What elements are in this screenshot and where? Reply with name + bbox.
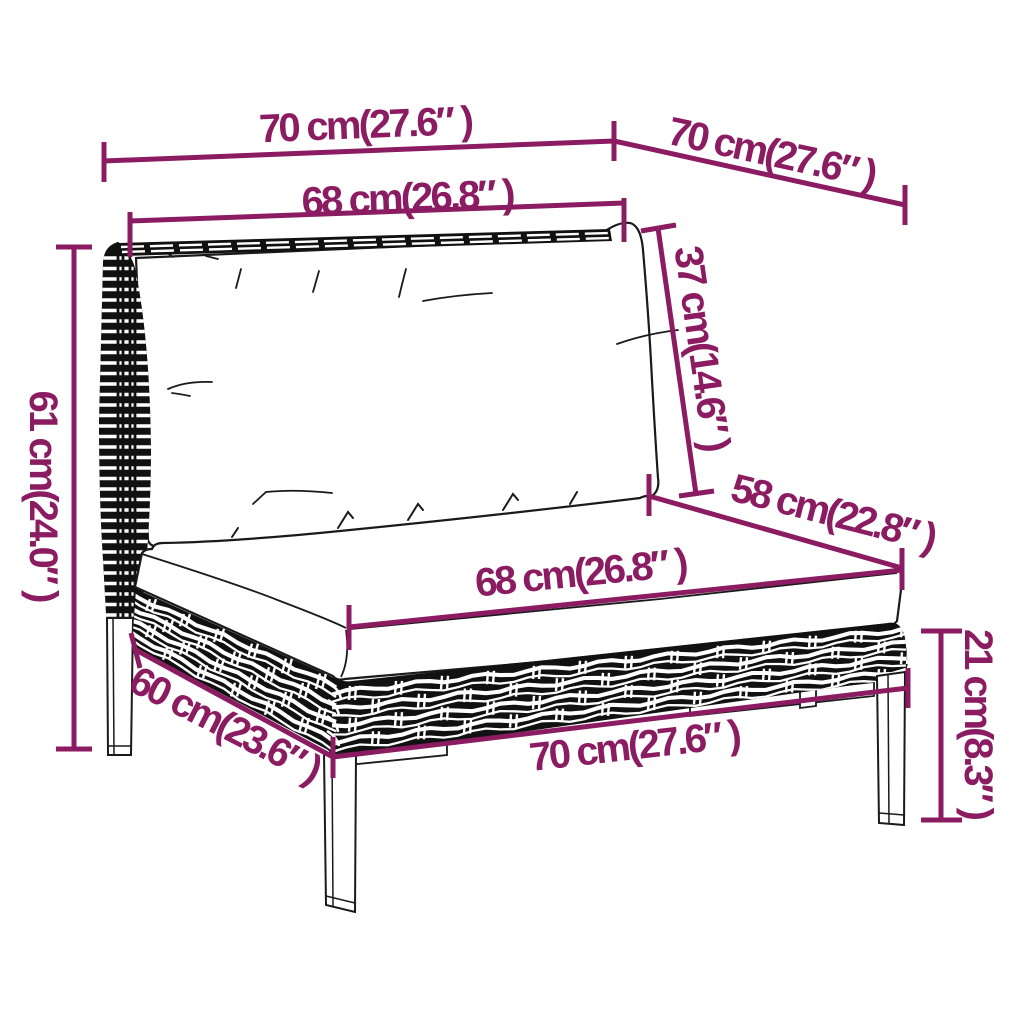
svg-text:21 cm(8.3″ ): 21 cm(8.3″ ) [956, 629, 1000, 821]
svg-text:68 cm(26.8″ ): 68 cm(26.8″ ) [301, 172, 517, 224]
svg-text:70 cm(27.6″ ): 70 cm(27.6″ ) [258, 99, 475, 152]
svg-text:61 cm(24.0″ ): 61 cm(24.0″ ) [21, 391, 65, 604]
